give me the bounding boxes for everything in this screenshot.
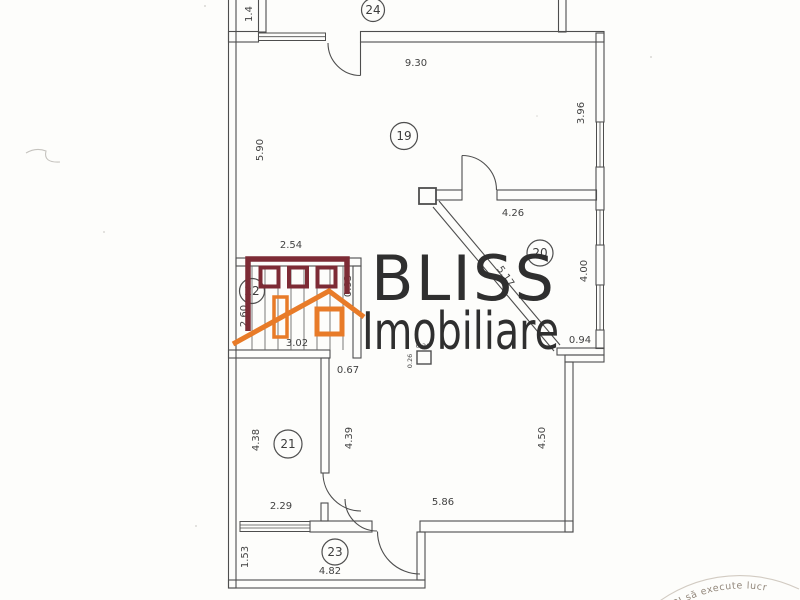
certification-stamp: ANCPI să execute lucr — [644, 576, 799, 600]
dim-opening-width: 0.67 — [337, 365, 359, 376]
brand-subtitle: Imobiliare — [362, 302, 559, 362]
stamp-text: ANCPI să execute lucr — [652, 580, 768, 600]
wall-segment — [420, 521, 573, 532]
dim-room23-bottom-width: 4.82 — [319, 566, 341, 577]
dim-stair-top-width: 2.54 — [280, 240, 302, 251]
window — [240, 522, 310, 532]
dim-stair-width: 3.02 — [286, 338, 308, 349]
wall-segment — [596, 245, 604, 285]
dim-room20-top-width: 4.26 — [502, 208, 524, 219]
wall-segment — [229, 350, 331, 358]
door-arc — [323, 473, 361, 511]
dim-hall-bottom-width: 5.86 — [432, 497, 454, 508]
room-number: 19 — [396, 129, 411, 143]
scan-dot — [195, 525, 197, 527]
scan-dot — [204, 5, 206, 7]
room-number: 24 — [365, 3, 380, 17]
dim-step-width: 0.94 — [569, 335, 591, 346]
room-label-23: 23 — [322, 539, 348, 565]
dim-room19-width: 9.30 — [405, 58, 427, 69]
wall-segment — [321, 358, 329, 473]
dim-hall-left-height: 4.39 — [344, 427, 355, 449]
door-arc — [328, 43, 361, 76]
floorplan-drawing: 24 19 20 22 21 23 1.4 9.30 5.90 3.96 4.2… — [0, 0, 800, 600]
dim-room19-right-height: 3.96 — [576, 102, 587, 124]
room-label-24: 24 — [362, 0, 385, 22]
house-window — [317, 309, 342, 334]
scan-dot — [650, 56, 652, 58]
wall-segment — [565, 362, 573, 532]
dim-room21-bottom-width: 2.29 — [270, 501, 292, 512]
wall-segment — [417, 532, 425, 580]
wall-segment — [361, 32, 605, 43]
wall-segment — [497, 190, 597, 200]
room-number: 21 — [280, 437, 295, 451]
wall-segment — [229, 0, 237, 588]
wall-segment — [596, 330, 604, 349]
door-arc — [462, 156, 497, 191]
wall-segment — [259, 0, 267, 32]
dim-room23-left-height: 1.53 — [240, 546, 251, 568]
building-window — [318, 268, 336, 287]
scan-smudge — [26, 149, 60, 162]
building-window — [261, 268, 279, 287]
room-number: 23 — [327, 545, 342, 559]
wall-segment — [559, 0, 567, 32]
room-label-21: 21 — [274, 430, 302, 458]
wall-segment — [229, 580, 426, 588]
dim-room19-left-height: 5.90 — [255, 139, 266, 161]
door-arc — [378, 532, 421, 575]
bliss-logo-watermark: BLISS Imobiliare — [233, 242, 559, 362]
wall-segment — [596, 167, 604, 210]
scanned-floorplan-page: 24 19 20 22 21 23 1.4 9.30 5.90 3.96 4.2… — [0, 0, 800, 600]
wall-segment — [565, 355, 604, 362]
scan-dot — [103, 231, 105, 233]
wall-segment — [321, 503, 328, 521]
wall-segment — [596, 33, 604, 122]
dim-hall-right-height: 4.50 — [537, 427, 548, 449]
wall-segment — [436, 190, 462, 200]
dim-shaft-width: 1.4 — [244, 6, 255, 22]
dim-room20-right-height: 4.00 — [579, 260, 590, 282]
wall-segment — [310, 521, 372, 532]
dim-room21-left-height: 4.38 — [251, 429, 262, 451]
house-logo-icon — [233, 259, 364, 344]
room-label-19: 19 — [391, 123, 418, 150]
pillar — [419, 188, 436, 204]
scan-dot — [536, 115, 538, 117]
wall-segment — [229, 32, 259, 43]
